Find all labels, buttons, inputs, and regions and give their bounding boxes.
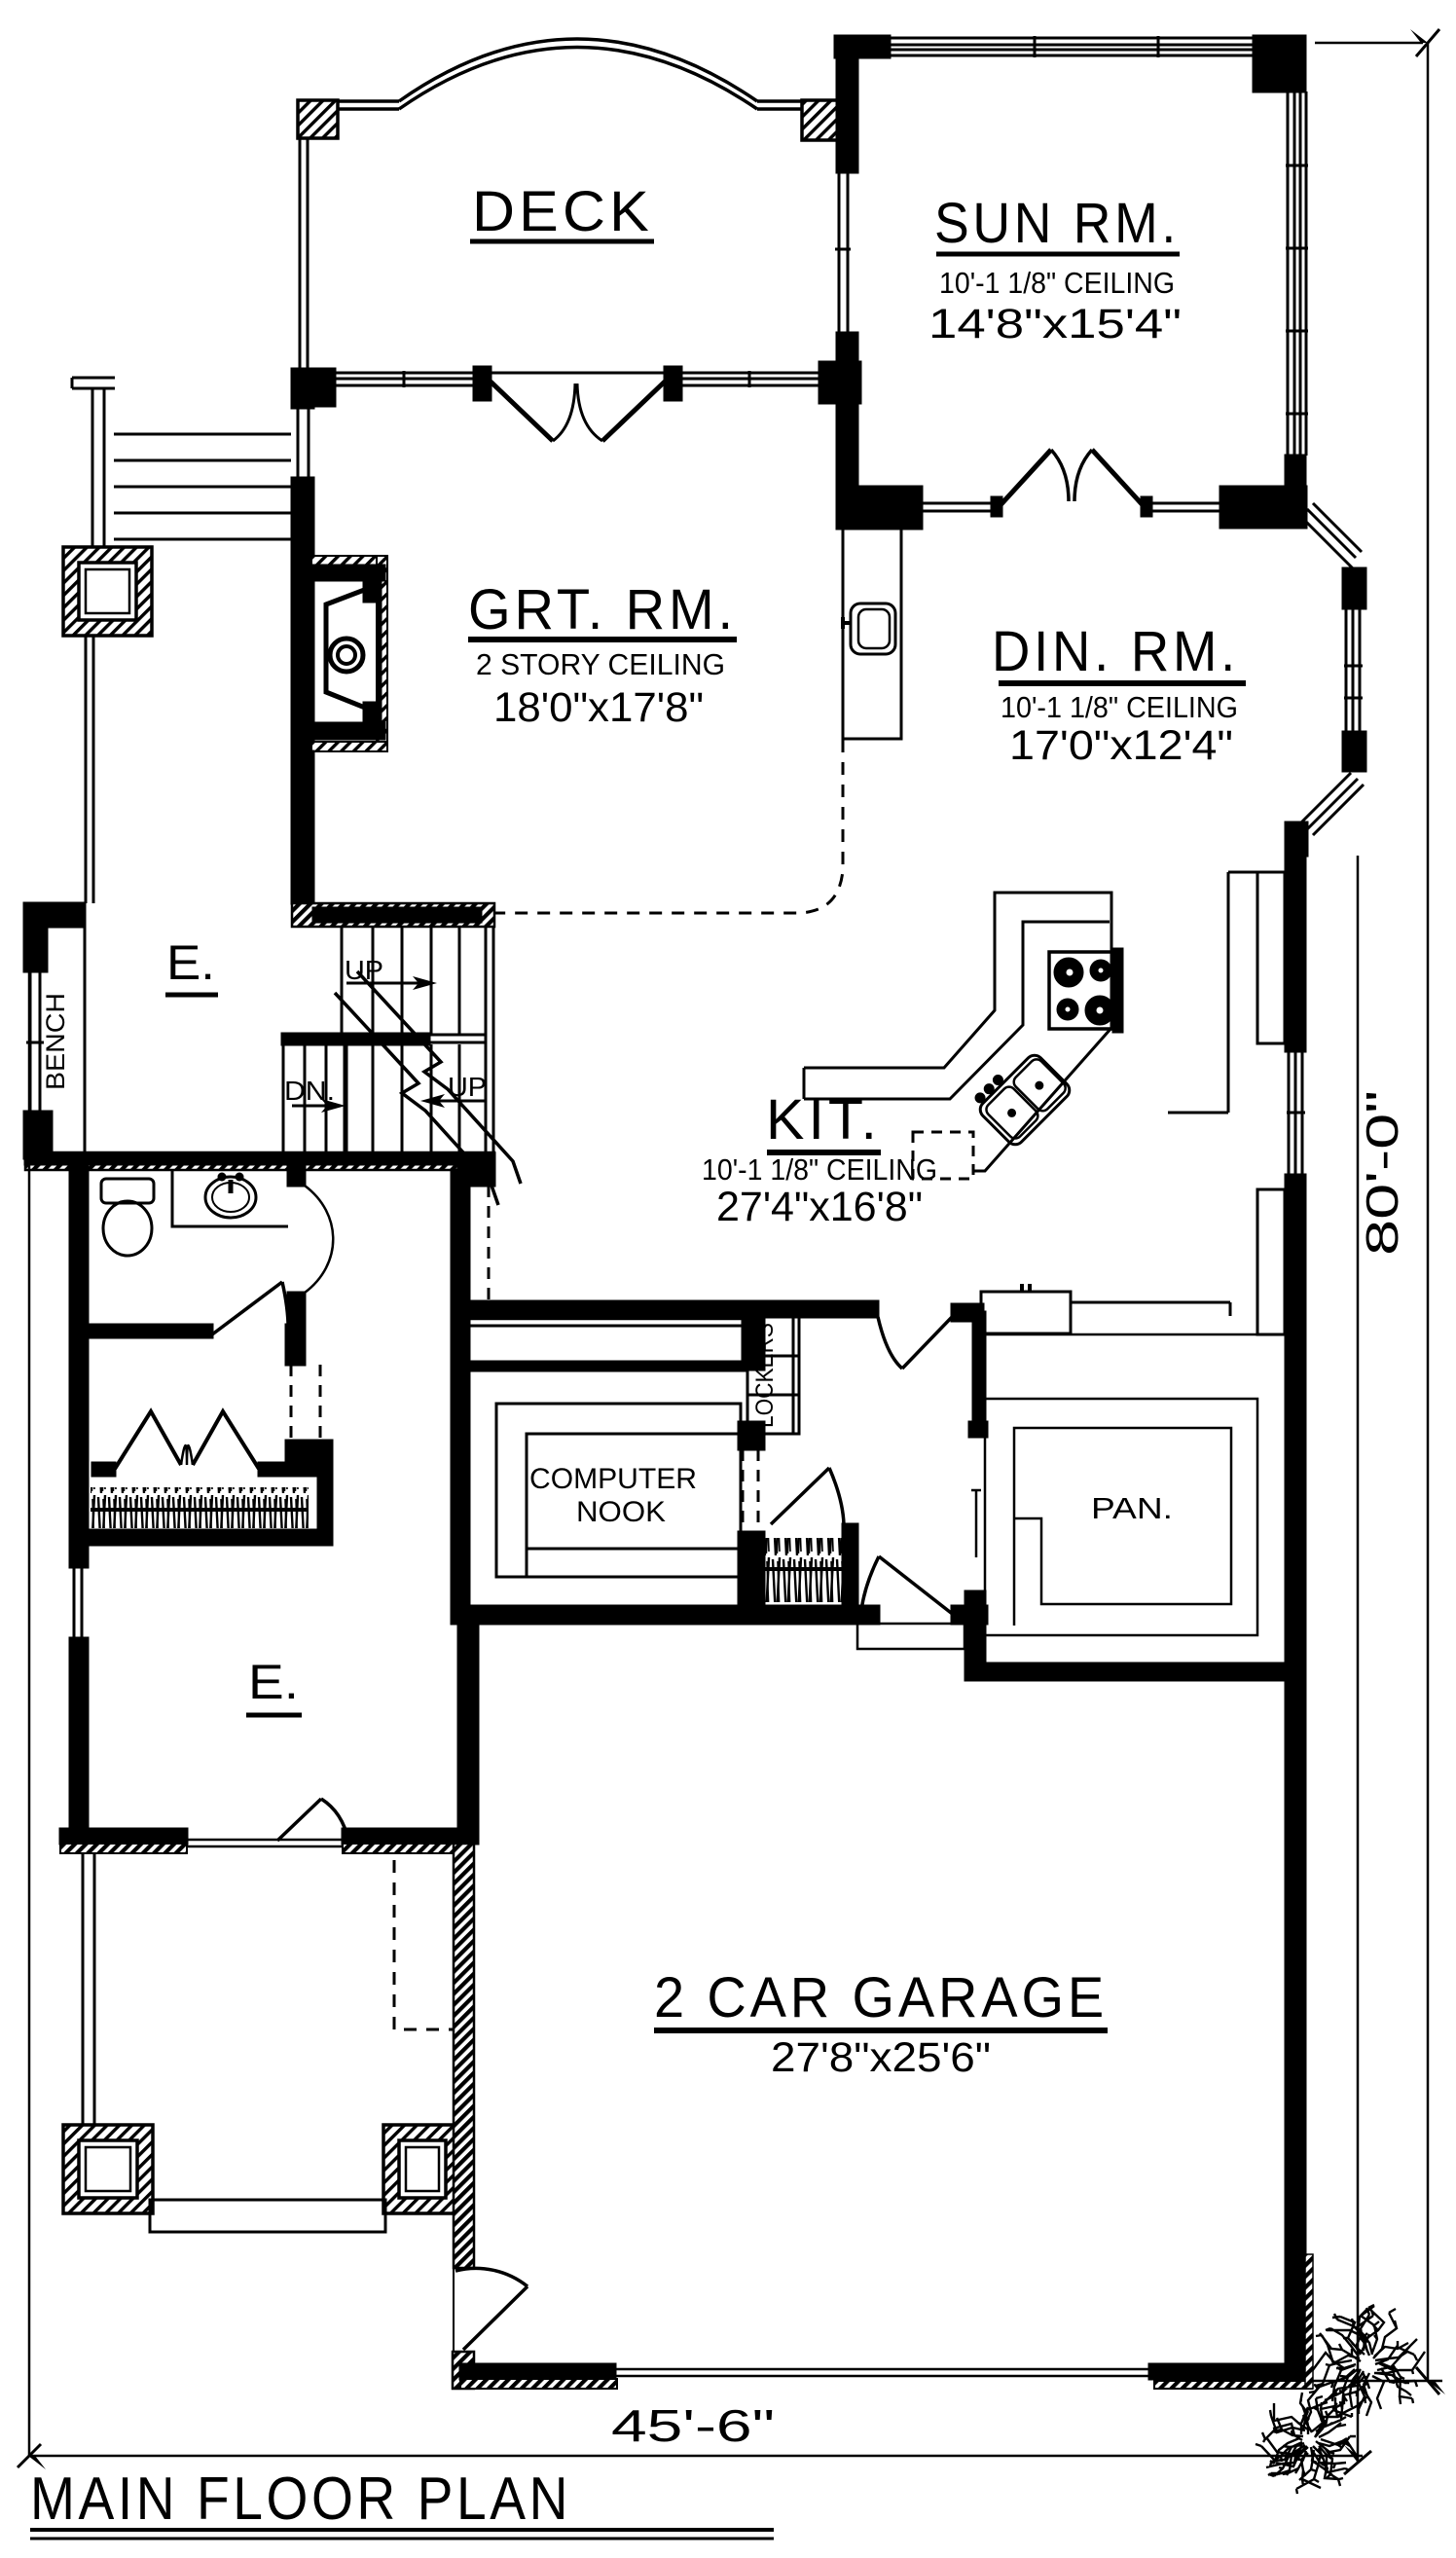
svg-text:80'-0": 80'-0" (1357, 1090, 1407, 1256)
svg-text:COMPUTER: COMPUTER (529, 1463, 697, 1495)
svg-text:KIT.: KIT. (766, 1088, 881, 1151)
svg-text:PAN.: PAN. (1091, 1491, 1173, 1525)
svg-text:18'0"x17'8": 18'0"x17'8" (493, 684, 704, 731)
svg-text:SUN RM.: SUN RM. (934, 192, 1180, 255)
svg-text:27'8"x25'6": 27'8"x25'6" (771, 2034, 991, 2081)
svg-text:17'0"x12'4": 17'0"x12'4" (1009, 722, 1233, 769)
svg-text:MAIN FLOOR PLAN: MAIN FLOOR PLAN (30, 2466, 571, 2533)
svg-text:27'4"x16'8": 27'4"x16'8" (716, 1184, 923, 1230)
svg-text:45'-6": 45'-6" (611, 2400, 775, 2451)
svg-text:14'8"x15'4": 14'8"x15'4" (928, 301, 1182, 347)
svg-text:E.: E. (166, 935, 215, 990)
svg-text:BENCH: BENCH (41, 993, 70, 1090)
svg-text:2 STORY CEILING: 2 STORY CEILING (476, 647, 725, 681)
svg-text:10'-1 1/8" CEILING: 10'-1 1/8" CEILING (702, 1152, 937, 1187)
svg-text:10'-1 1/8" CEILING: 10'-1 1/8" CEILING (939, 266, 1175, 300)
svg-text:GRT. RM.: GRT. RM. (468, 578, 737, 641)
svg-text:2 CAR GARAGE: 2 CAR GARAGE (654, 1966, 1108, 2029)
svg-text:DIN. RM.: DIN. RM. (992, 620, 1239, 683)
svg-text:DECK: DECK (472, 180, 653, 243)
svg-text:NOOK: NOOK (576, 1496, 666, 1528)
svg-text:10'-1 1/8" CEILING: 10'-1 1/8" CEILING (1001, 690, 1238, 724)
svg-text:E.: E. (248, 1655, 299, 1709)
